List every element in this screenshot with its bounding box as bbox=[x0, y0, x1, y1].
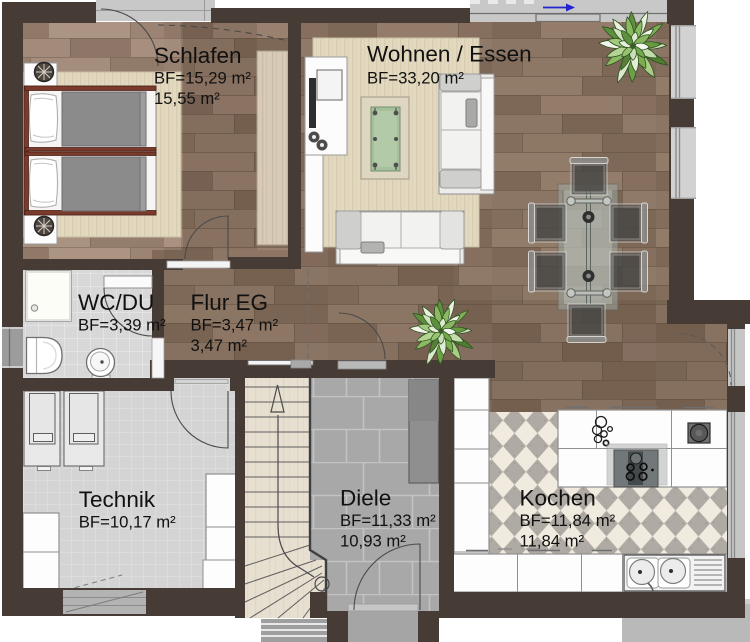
svg-text:Diele: Diele bbox=[340, 486, 391, 511]
svg-text:Schlafen: Schlafen bbox=[154, 43, 242, 68]
svg-text:BF=10,17 m²: BF=10,17 m² bbox=[79, 513, 176, 532]
svg-text:10,93 m²: 10,93 m² bbox=[340, 532, 406, 551]
svg-text:BF=11,33 m²: BF=11,33 m² bbox=[340, 511, 436, 530]
svg-text:11,84 m²: 11,84 m² bbox=[520, 532, 585, 551]
svg-text:WC/DU: WC/DU bbox=[78, 290, 154, 315]
svg-text:Kochen: Kochen bbox=[520, 486, 596, 511]
svg-text:15,55 m²: 15,55 m² bbox=[154, 89, 220, 108]
svg-text:BF=11,84 m²: BF=11,84 m² bbox=[520, 511, 616, 530]
svg-text:Wohnen / Essen: Wohnen / Essen bbox=[367, 42, 532, 67]
svg-text:BF=3,39 m²: BF=3,39 m² bbox=[78, 316, 166, 335]
svg-text:Flur EG: Flur EG bbox=[191, 290, 269, 315]
svg-text:BF=3,47 m²: BF=3,47 m² bbox=[191, 316, 279, 335]
svg-text:Technik: Technik bbox=[79, 487, 156, 512]
svg-text:BF=15,29 m²: BF=15,29 m² bbox=[154, 69, 251, 88]
svg-text:BF=33,20 m²: BF=33,20 m² bbox=[367, 69, 464, 88]
svg-text:3,47 m²: 3,47 m² bbox=[191, 336, 248, 355]
